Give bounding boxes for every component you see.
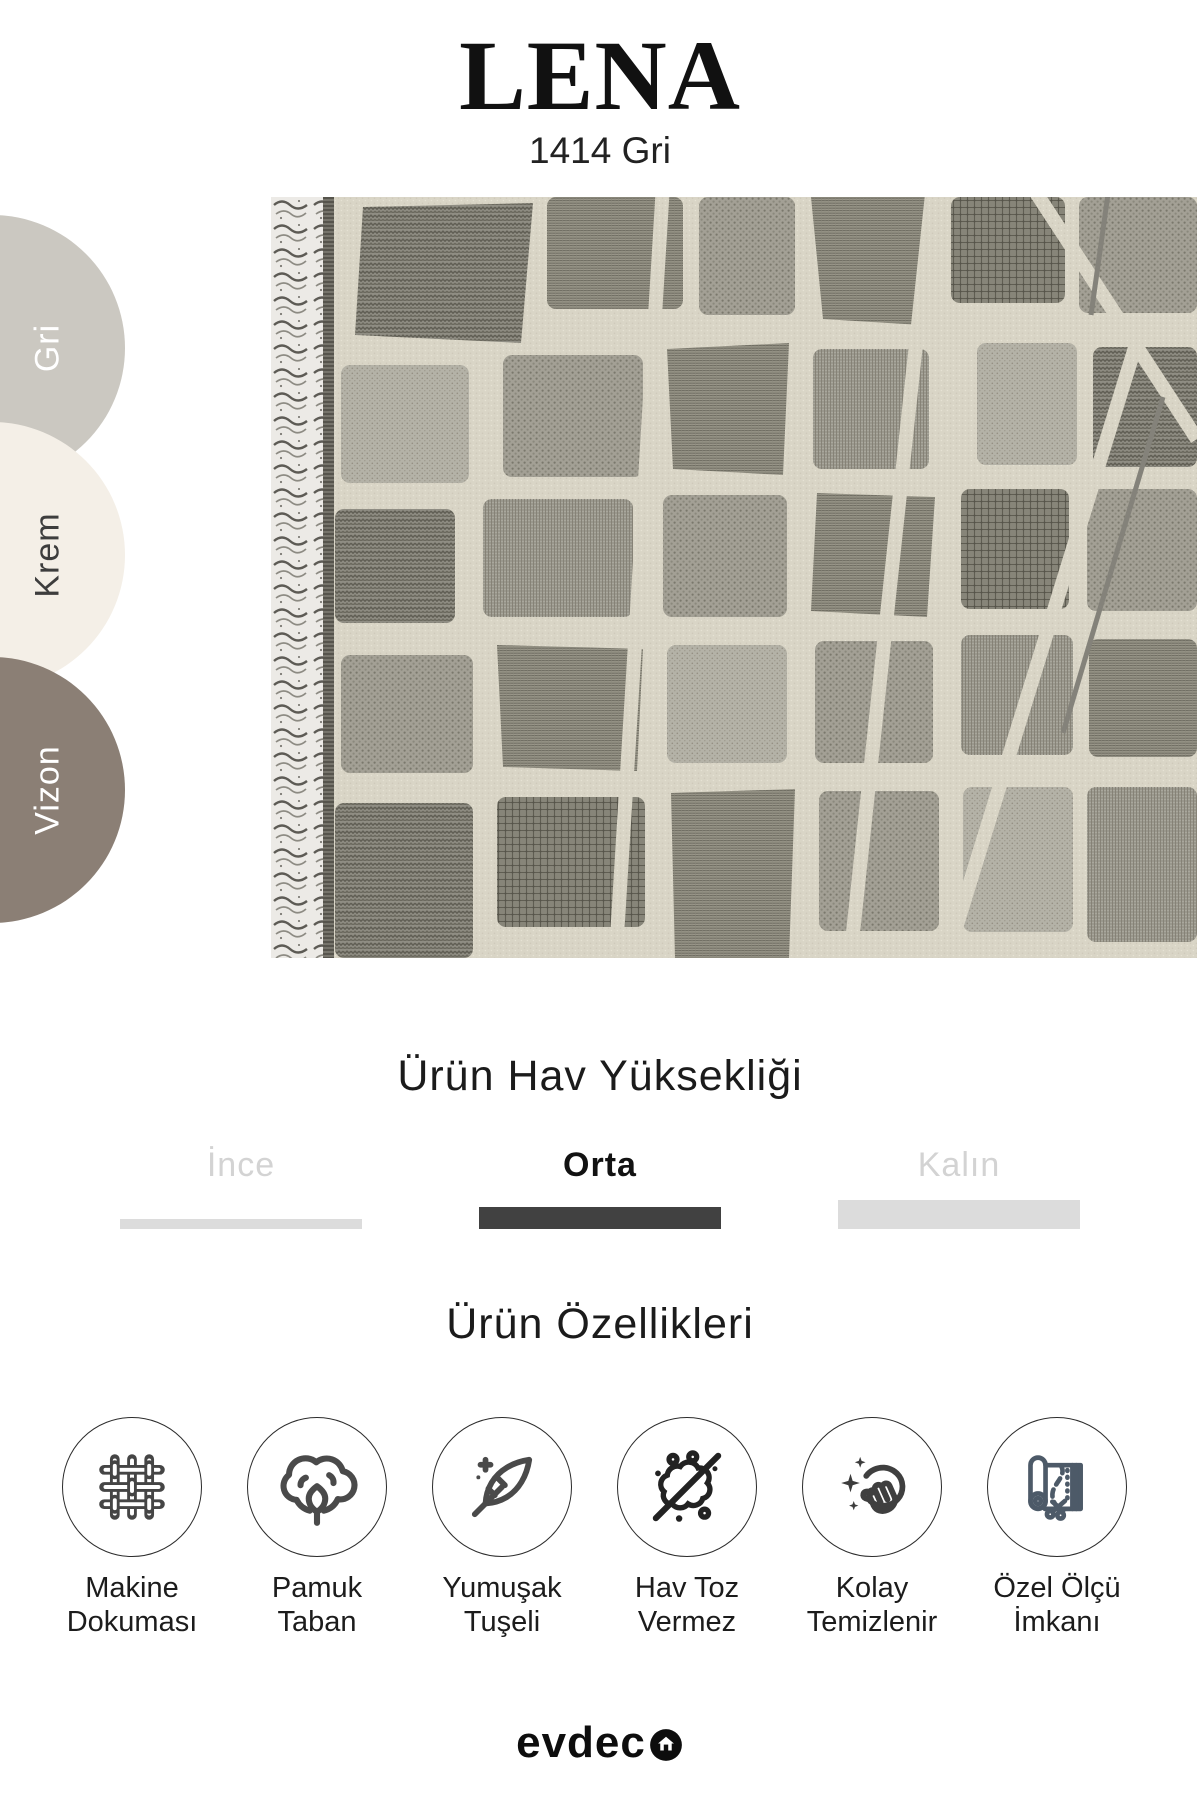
feature-custom-size: Özel Ölçüİmkanı — [964, 1417, 1150, 1639]
cotton-icon — [274, 1444, 360, 1530]
color-swatch-vizon[interactable]: Vizon — [0, 657, 125, 923]
feature-soft-touch: YumuşakTuşeli — [409, 1417, 595, 1639]
feature-label: PamukTaban — [224, 1571, 410, 1639]
feature-easy-clean: KolayTemizlenir — [779, 1417, 965, 1639]
feature-cotton-base: PamukTaban — [224, 1417, 410, 1639]
no-dust-icon — [644, 1444, 730, 1530]
pile-thickness-bar — [838, 1200, 1080, 1229]
feature-label: YumuşakTuşeli — [409, 1571, 595, 1639]
page-title: LENA — [0, 26, 1200, 126]
rug-product-photo — [271, 197, 1197, 958]
swatch-label: Gri — [29, 324, 68, 372]
custom-size-icon — [1014, 1444, 1100, 1530]
pile-option-orta[interactable]: Orta — [479, 1146, 721, 1229]
woven-fabric-icon — [89, 1444, 175, 1530]
feature-label: Hav TozVermez — [594, 1571, 780, 1639]
pile-thickness-bar — [479, 1207, 721, 1229]
pile-option-label: Kalın — [838, 1146, 1080, 1185]
feature-label: KolayTemizlenir — [779, 1571, 965, 1639]
pile-option-label: Orta — [479, 1146, 721, 1185]
feature-label: MakineDokuması — [39, 1571, 225, 1639]
product-card: LENA 1414 Gri Gri Krem Vizon — [0, 0, 1200, 1800]
feature-label: Özel Ölçüİmkanı — [964, 1571, 1150, 1639]
feature-ring — [247, 1417, 387, 1557]
feature-ring — [617, 1417, 757, 1557]
feather-icon — [459, 1444, 545, 1530]
selvedge-band — [323, 197, 334, 958]
color-swatch-krem[interactable]: Krem — [0, 422, 125, 688]
feature-ring — [802, 1417, 942, 1557]
fringe-tassels — [271, 197, 323, 958]
swatch-label: Vizon — [29, 745, 68, 834]
features-heading: Ürün Özellikleri — [0, 1300, 1200, 1349]
feature-machine-woven: MakineDokuması — [39, 1417, 225, 1639]
pile-option-label: İnce — [120, 1146, 362, 1185]
swatch-label: Krem — [29, 512, 68, 597]
pile-height-heading: Ürün Hav Yüksekliği — [0, 1052, 1200, 1101]
pile-thickness-bar — [120, 1219, 362, 1229]
house-in-o-icon — [648, 1727, 684, 1763]
pile-option-kalin[interactable]: Kalın — [838, 1146, 1080, 1229]
feature-ring — [62, 1417, 202, 1557]
feature-ring — [432, 1417, 572, 1557]
brand-logo: evdec — [0, 1718, 1200, 1768]
product-code: 1414 Gri — [0, 130, 1200, 172]
pile-option-ince[interactable]: İnce — [120, 1146, 362, 1229]
brand-logo-text: evdec — [516, 1718, 646, 1768]
easy-clean-icon — [829, 1444, 915, 1530]
feature-no-dust: Hav TozVermez — [594, 1417, 780, 1639]
feature-ring — [987, 1417, 1127, 1557]
